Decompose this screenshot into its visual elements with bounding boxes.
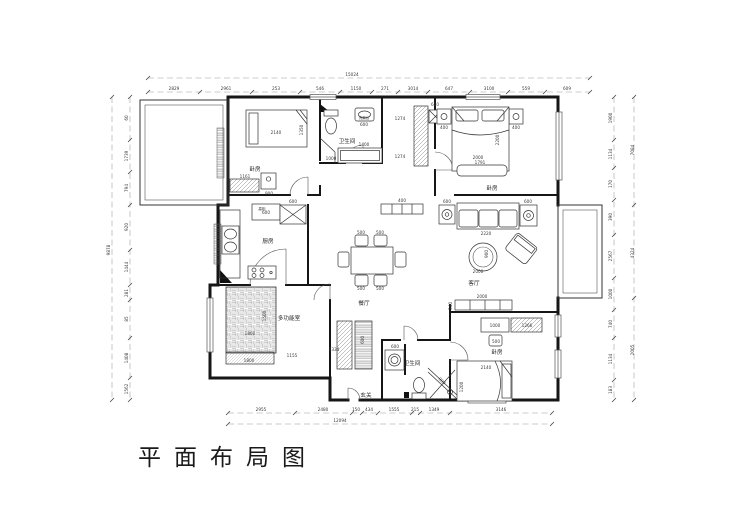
dim-left-8: 1562 [124,383,129,394]
dim-tatami-w: 1800 [245,331,256,336]
dim-left-5: 281 [124,289,129,297]
dim-top-10: 609 [563,86,571,91]
dim-bath-a: 1000 [326,156,337,161]
dim-top-0: 2829 [169,86,180,91]
dim-top-total: 15024 [345,72,359,77]
tv-cabinet [455,300,512,310]
label-kitchen: 厨房 [262,237,274,245]
dim-top-1: 2961 [221,86,232,91]
label-bedroom-tr: 卧房 [486,184,498,192]
dim-right-1: 1134 [608,148,613,159]
floor-plan-page: 15024 2829 2961 253 546 1150 271 3014 64… [0,0,740,523]
dim-left-7: 1408 [124,352,129,363]
dim-right-2: 170 [608,180,613,188]
label-living: 客厅 [468,279,480,287]
dim-strip: 600 [360,336,365,344]
dim-right-0: 1900 [608,112,613,123]
dim-top-2: 253 [272,86,280,91]
dim-top-9: 559 [522,86,530,91]
dim-right-5: 1000 [608,288,613,299]
dim-right-outer-0: 7084 [630,144,635,155]
label-entry: 玄关 [360,391,372,399]
bed-top-left [246,110,307,147]
dim-right-outer-2: 2005 [630,344,635,355]
dim-chair-br: 500 [492,339,500,344]
dim-closet-b: 1274 [395,154,406,159]
dining-table [351,247,393,274]
dim-nightstand-l: 400 [440,125,448,130]
dim-left-1: 1739 [124,150,129,161]
dim-sideboard: 400 [398,198,406,203]
kitchen-sink [222,226,239,254]
label-multi-room: 多功能室 [278,314,301,322]
dim-top-7: 647 [445,86,453,91]
dim-bath-b: 1400 [359,142,370,147]
dim-right-8: 183 [608,386,613,394]
dim-basin: 600 [360,122,368,127]
hall-closet [414,106,428,166]
label-bathroom-bottom: 卫生间 [404,359,421,367]
dim-desk-br: 1000 [490,323,501,328]
dim-bench: 1791 [475,160,486,165]
dim-chair-4: 500 [376,286,384,291]
dim-right-4: 2567 [608,250,613,261]
dim-wardrobe-tl: 1161 [240,174,251,179]
dining-furniture [338,204,423,286]
balcony-right [558,205,602,298]
dim-right-outer-1: 4324 [630,247,635,258]
dim-multi-desk: 1800 [244,358,255,363]
dim-right-7: 1134 [608,353,613,364]
dim-left-3: 920 [124,223,129,231]
dim-top-6: 3014 [408,86,419,91]
entry-closet-b [355,321,372,369]
dim-chair-2: 500 [376,230,384,235]
dim-bed-tr-h: 2200 [495,134,500,145]
dim-nightstand-r: 400 [512,125,520,130]
dim-closet-c: 600 [431,102,439,107]
dim-closet-a: 1274 [395,116,406,121]
dim-fridge: 600 [289,199,297,204]
dim-dresser: 900 [265,191,273,196]
toilet-bottom [412,378,426,400]
window-balcony-divider [217,128,224,178]
dim-left-4: 1444 [124,261,129,272]
armchair [505,232,538,265]
dim-sofa: 2220 [481,231,492,236]
dim-tv: 2000 [477,294,488,299]
dim-tv-d: 340 [448,302,453,310]
dim-bed-tl-h: 1350 [299,124,304,135]
dim-right-6: 740 [608,320,613,328]
dim-left-6: 85 [124,316,129,322]
dim-bottom-7: 3146 [496,407,507,412]
label-bedroom-br: 卧房 [491,348,503,356]
wardrobe-tl [230,179,259,192]
dim-bottom-5: 215 [411,407,419,412]
dim-chair-1: 500 [357,230,365,235]
sofa [457,203,519,229]
page-title: 平面布局图 [138,445,318,471]
bedroom-br-furniture [457,318,542,401]
dim-rug: 900 [484,250,489,258]
balcony-left [140,100,228,205]
dim-top-8: 3100 [484,86,495,91]
dim-multi-b: 1334 [329,347,340,352]
dim-top-4: 1150 [351,86,362,91]
dim-wardrobe-br: 1266 [522,323,533,328]
dim-bottom-2: 150 [352,407,360,412]
washing-machine [385,350,404,370]
dim-left-2: 794 [124,184,129,192]
label-dining: 餐厅 [358,299,370,307]
label-bedroom-tl: 卧房 [249,165,261,173]
dim-bottom-total: 12094 [333,418,347,423]
tatami-mat [226,287,276,353]
dim-left-total: 9878 [106,244,111,255]
dim-rug-w: 2000 [473,269,484,274]
dim-tatami-h: 1500 [262,310,267,321]
bed-bench [457,165,507,176]
dim-washer: 600 [391,344,399,349]
dim-bottom-4: 1555 [389,407,400,412]
dim-endtable-r: 600 [524,199,532,204]
dim-bed-tl-w: 2140 [271,130,282,135]
dim-bottom-6: 1349 [429,407,440,412]
label-tall-cabinet: 高柜 [258,206,266,211]
entry-closet-a [337,321,352,369]
dim-bottom-0: 2955 [256,407,267,412]
toilet-top [324,110,338,134]
floor-plan-canvas: 15024 2829 2961 253 546 1150 271 3014 64… [0,0,740,523]
bed-top-right [437,107,523,176]
dim-right-3: 390 [608,213,613,221]
dim-endtable-l: 600 [443,199,451,204]
dim-bottom-3: 434 [365,407,373,412]
dim-left-0: 60 [124,115,129,121]
dim-bed-br-w: 2140 [481,365,492,370]
dim-top-5: 271 [381,86,389,91]
label-bathroom-top: 卫生间 [339,137,356,145]
dim-bottom-1: 2480 [318,407,329,412]
dim-bed-br-h: 1200 [459,381,464,392]
label-washstand: 洗漱台 [359,115,370,120]
dim-multi-a: 1155 [287,353,298,358]
dim-chair-3: 500 [357,286,365,291]
dim-top-3: 546 [316,86,324,91]
